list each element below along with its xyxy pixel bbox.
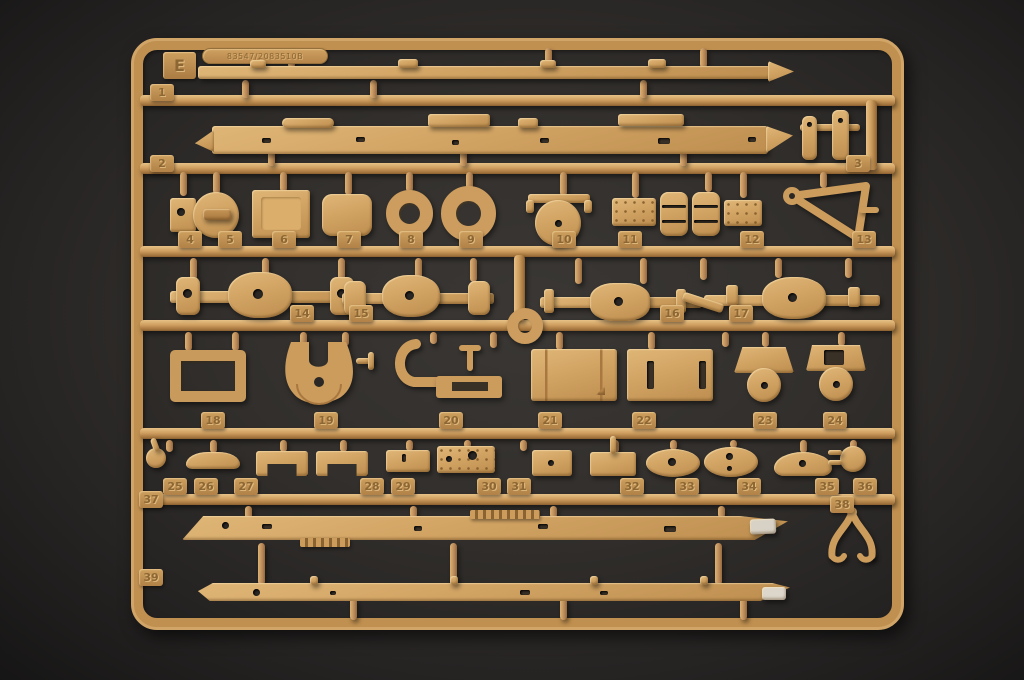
molded-hole bbox=[177, 208, 185, 216]
light-patch bbox=[750, 519, 777, 535]
hub-part bbox=[507, 308, 543, 344]
sprue-gate bbox=[232, 332, 239, 351]
molded-hole bbox=[356, 137, 365, 142]
sprue-gate bbox=[280, 172, 287, 192]
part-number-tab-26: 26 bbox=[194, 478, 218, 495]
part-12-drum bbox=[692, 192, 720, 236]
part-26-arch-strip bbox=[186, 452, 240, 469]
molded-detail bbox=[544, 289, 554, 313]
molded-detail bbox=[310, 576, 318, 585]
runner-rail-h7 bbox=[140, 494, 895, 505]
sprue-gate bbox=[740, 598, 747, 620]
molded-detail bbox=[526, 200, 534, 213]
sprue-gate bbox=[640, 80, 647, 98]
part-number-tab-22: 22 bbox=[632, 412, 656, 429]
molded-detail bbox=[694, 220, 718, 223]
part-number-tab-24: 24 bbox=[823, 412, 847, 429]
sprue-gate bbox=[775, 258, 782, 278]
sprue-gate bbox=[762, 332, 769, 347]
sprue-gate bbox=[166, 440, 173, 452]
molded-hole bbox=[799, 460, 806, 467]
part-15-knuckle bbox=[468, 281, 490, 315]
molded-hole bbox=[540, 138, 549, 143]
sprue-gate bbox=[700, 48, 707, 68]
runner-rail-h3 bbox=[140, 163, 895, 174]
molded-detail bbox=[540, 60, 556, 68]
molded-hole bbox=[833, 381, 840, 388]
part-number-tab-8: 8 bbox=[399, 231, 423, 248]
molded-hole bbox=[668, 458, 676, 466]
molded-hole bbox=[555, 220, 562, 227]
part-number-tab-38: 38 bbox=[830, 496, 854, 513]
part-hook bbox=[368, 352, 374, 370]
molded-hole bbox=[614, 297, 623, 306]
molded-hole bbox=[727, 466, 732, 471]
part-number-tab-37: 37 bbox=[139, 491, 163, 508]
molded-detail bbox=[428, 114, 490, 127]
molded-detail bbox=[300, 538, 350, 547]
molded-hole bbox=[538, 524, 548, 529]
runner-rail-h2 bbox=[140, 95, 895, 106]
molded-hole bbox=[838, 118, 843, 123]
molded-detail bbox=[398, 59, 418, 68]
sprue-gate bbox=[632, 172, 639, 198]
sprue-gate bbox=[258, 543, 265, 585]
part-number-tab-1: 1 bbox=[150, 84, 174, 101]
sprue-gate bbox=[740, 172, 747, 198]
molded-hole bbox=[183, 289, 192, 298]
molded-detail bbox=[694, 205, 718, 208]
molded-hole bbox=[222, 522, 229, 529]
part-number-tab-7: 7 bbox=[337, 231, 361, 248]
part-number-tab-13: 13 bbox=[852, 231, 876, 248]
part-32-block bbox=[590, 452, 636, 476]
sprue-gate bbox=[560, 598, 567, 620]
molded-hole bbox=[330, 591, 336, 595]
part-number-tab-14: 14 bbox=[290, 305, 314, 322]
molded-detail bbox=[470, 510, 540, 519]
photo-of-model-kit-sprue: E 83547/2083510B bbox=[0, 0, 1024, 680]
part-11-plate bbox=[612, 198, 656, 226]
molded-hole bbox=[520, 590, 530, 595]
runner-rail-h6 bbox=[140, 428, 895, 439]
part-29-block bbox=[386, 450, 430, 472]
sprue-gate bbox=[575, 258, 582, 284]
molded-detail bbox=[648, 59, 666, 68]
molded-hole bbox=[253, 289, 263, 299]
part-number-tab-39: 39 bbox=[139, 569, 163, 586]
sprue-gate bbox=[242, 80, 249, 98]
molded-hole bbox=[647, 361, 654, 389]
part-number-tab-34: 34 bbox=[737, 478, 761, 495]
molded-detail bbox=[590, 576, 598, 585]
part-37-chassis-rail bbox=[182, 516, 788, 540]
part-34-housing-cover bbox=[704, 447, 758, 477]
sprue-gate bbox=[520, 440, 527, 451]
molded-hole bbox=[548, 460, 554, 466]
part-number-tab-32: 32 bbox=[620, 478, 644, 495]
sprue-gate bbox=[350, 598, 357, 620]
part-38-wishbone bbox=[822, 504, 882, 564]
molded-hole bbox=[699, 361, 706, 389]
part-number-tab-16: 16 bbox=[660, 305, 684, 322]
molded-detail bbox=[450, 576, 458, 585]
part-number-tab-25: 25 bbox=[163, 478, 187, 495]
part-number-tab-18: 18 bbox=[201, 412, 225, 429]
part-number-tab-17: 17 bbox=[729, 305, 753, 322]
part-32-pin bbox=[610, 436, 616, 454]
part-number-tab-9: 9 bbox=[459, 231, 483, 248]
molded-detail bbox=[662, 220, 686, 223]
part-number-tab-15: 15 bbox=[349, 305, 373, 322]
sprue-gate bbox=[845, 258, 852, 278]
part-number-tab-31: 31 bbox=[507, 478, 531, 495]
part-18-frame-plate bbox=[170, 350, 246, 402]
part-20-pipe-assembly bbox=[392, 336, 508, 410]
part-number-tab-28: 28 bbox=[360, 478, 384, 495]
molded-hole bbox=[600, 591, 608, 595]
sprue-gate bbox=[640, 258, 647, 284]
sprue-gate bbox=[838, 332, 845, 346]
molded-hole bbox=[726, 453, 733, 460]
sprue-gate bbox=[705, 172, 712, 192]
molded-hole bbox=[402, 454, 406, 462]
part-number-tab-2: 2 bbox=[150, 155, 174, 172]
sprue-gate bbox=[340, 440, 347, 452]
part-number-tab-19: 19 bbox=[314, 412, 338, 429]
molded-hole bbox=[664, 526, 676, 532]
sprue-gate bbox=[185, 332, 192, 351]
molded-hole bbox=[405, 291, 414, 300]
molded-detail bbox=[700, 576, 708, 585]
sprue-gate bbox=[406, 172, 413, 192]
molded-detail bbox=[518, 118, 538, 128]
sprue-gate bbox=[556, 332, 563, 350]
molded-detail bbox=[662, 205, 686, 208]
molded-hole bbox=[788, 293, 797, 302]
sprue-gate bbox=[560, 172, 567, 196]
part-number-tab-33: 33 bbox=[675, 478, 699, 495]
molded-detail bbox=[726, 285, 738, 305]
part-12-drum bbox=[660, 192, 688, 236]
sprue-gate bbox=[715, 543, 722, 585]
light-patch bbox=[762, 587, 786, 600]
molded-hole bbox=[253, 589, 260, 596]
part-number-tab-21: 21 bbox=[538, 412, 562, 429]
part-number-tab-12: 12 bbox=[740, 231, 764, 248]
part-19-fifth-wheel bbox=[281, 338, 357, 410]
molded-hole bbox=[807, 122, 812, 127]
molded-hole bbox=[468, 451, 477, 460]
part-number-tab-6: 6 bbox=[272, 231, 296, 248]
sprue-gate bbox=[470, 258, 477, 282]
part-number-tab-4: 4 bbox=[178, 231, 202, 248]
part-2-chassis-rail bbox=[212, 126, 768, 154]
part-1-frame-beam bbox=[198, 66, 770, 79]
molded-hole bbox=[748, 137, 756, 142]
molded-hole bbox=[414, 526, 422, 531]
part-number-tab-5: 5 bbox=[218, 231, 242, 248]
part-7-plate bbox=[322, 194, 372, 236]
molded-hole bbox=[262, 138, 271, 143]
sprue-gate bbox=[345, 172, 352, 195]
part-number-tab-27: 27 bbox=[234, 478, 258, 495]
sprue-gate bbox=[700, 258, 707, 280]
part-number-tab-11: 11 bbox=[618, 231, 642, 248]
molded-detail bbox=[828, 460, 842, 465]
molded-detail bbox=[584, 200, 592, 213]
sprue-gate bbox=[213, 172, 220, 194]
sprue-gate bbox=[280, 440, 287, 452]
molded-detail bbox=[261, 197, 301, 230]
part-number-tab-20: 20 bbox=[439, 412, 463, 429]
molded-detail bbox=[848, 287, 860, 307]
part-39-frame-rail bbox=[198, 583, 790, 601]
sprue-gate bbox=[370, 80, 377, 98]
molded-hole bbox=[761, 382, 768, 389]
part-number-tab-30: 30 bbox=[477, 478, 501, 495]
molded-detail bbox=[250, 60, 266, 68]
part-number-tab-36: 36 bbox=[853, 478, 877, 495]
part-number-tab-29: 29 bbox=[391, 478, 415, 495]
molded-detail bbox=[828, 450, 842, 455]
sprue-letter-tab: E bbox=[163, 52, 196, 79]
part-number-tab-10: 10 bbox=[552, 231, 576, 248]
molded-detail bbox=[203, 209, 231, 220]
molded-hole bbox=[658, 138, 670, 144]
part-number-tab-3: 3 bbox=[846, 155, 870, 172]
molded-hole bbox=[824, 350, 844, 365]
part-8-ring bbox=[386, 190, 433, 237]
molded-hole bbox=[452, 140, 459, 145]
molded-detail bbox=[282, 118, 334, 128]
part-number-tab-35: 35 bbox=[815, 478, 839, 495]
molded-hole bbox=[262, 524, 272, 529]
part-12-plate bbox=[724, 200, 762, 226]
sprue-gate bbox=[180, 172, 187, 196]
molded-hole bbox=[446, 456, 452, 462]
molded-detail bbox=[618, 114, 684, 126]
part-number-tab-23: 23 bbox=[753, 412, 777, 429]
sprue-gate bbox=[648, 332, 655, 350]
part-36-plug bbox=[840, 446, 866, 472]
sprue-gate bbox=[722, 332, 729, 347]
